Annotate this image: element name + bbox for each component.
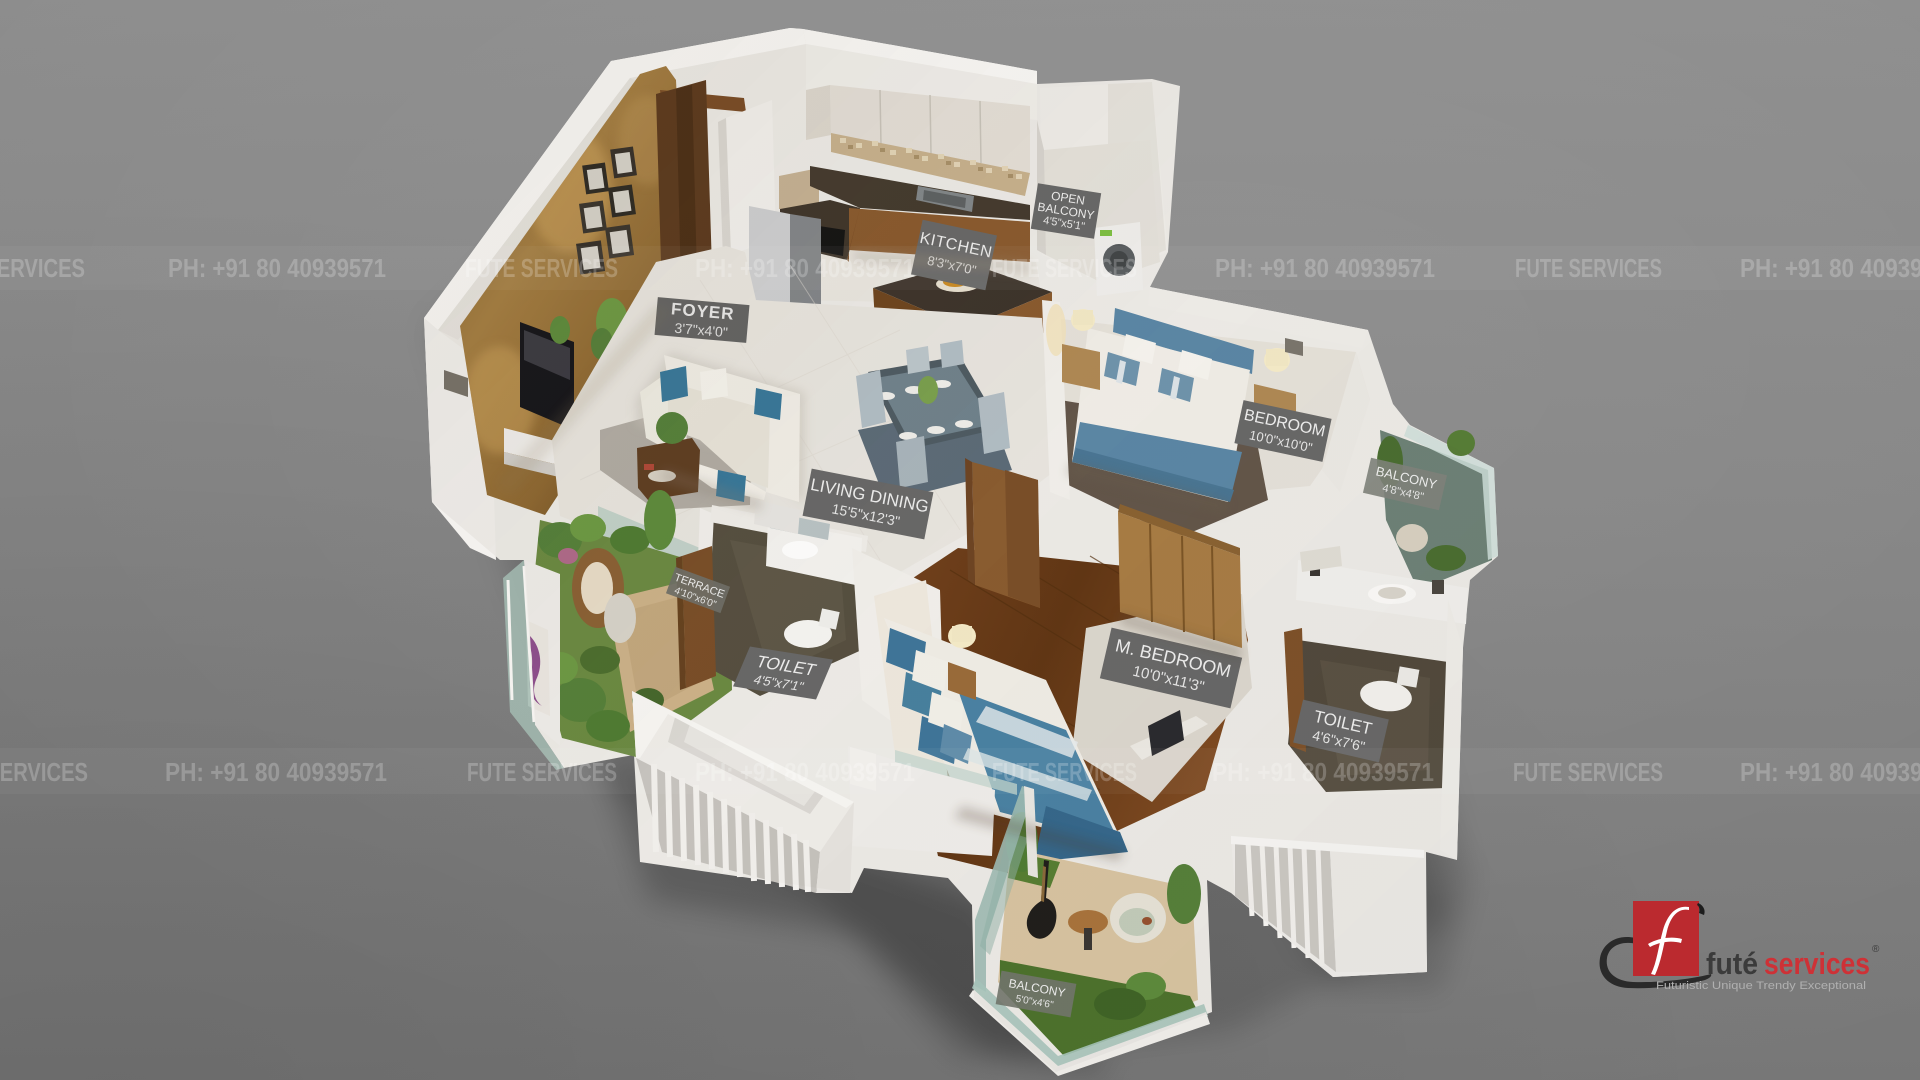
svg-text:PH: +91 80 40939571: PH: +91 80 40939571 [1212,757,1434,787]
svg-text:FUTE SERVICES: FUTE SERVICES [0,253,85,283]
svg-text:FUTE SERVICES: FUTE SERVICES [1513,757,1663,787]
svg-text:PH: +91 80 40939571: PH: +91 80 40939571 [695,253,915,283]
svg-text:services: services [1764,946,1870,981]
svg-text:FUTE SERVICES: FUTE SERVICES [992,253,1137,283]
svg-text:FUTE SERVICES: FUTE SERVICES [992,757,1137,787]
svg-text:FUTE SERVICES: FUTE SERVICES [1515,253,1662,283]
svg-text:PH: +91 80 40939571: PH: +91 80 40939571 [1215,253,1435,283]
svg-text:PH: +91 80 40939571: PH: +91 80 40939571 [1740,757,1920,787]
svg-text:PH: +91 80 40939571: PH: +91 80 40939571 [165,757,387,787]
svg-text:futé: futé [1706,946,1758,981]
svg-text:PH: +91 80 40939571: PH: +91 80 40939571 [1740,253,1920,283]
svg-text:FUTE SERVICES: FUTE SERVICES [0,757,88,787]
svg-text:FUTE SERVICES: FUTE SERVICES [465,253,618,283]
svg-text:FUTE SERVICES: FUTE SERVICES [467,757,617,787]
svg-text:Futuristic Unique Trendy Excep: Futuristic Unique Trendy Exceptional [1656,980,1866,992]
svg-text:PH: +91 80 40939571: PH: +91 80 40939571 [695,757,915,787]
svg-text:PH: +91 80 40939571: PH: +91 80 40939571 [168,253,386,283]
svg-text:®: ® [1872,944,1880,955]
